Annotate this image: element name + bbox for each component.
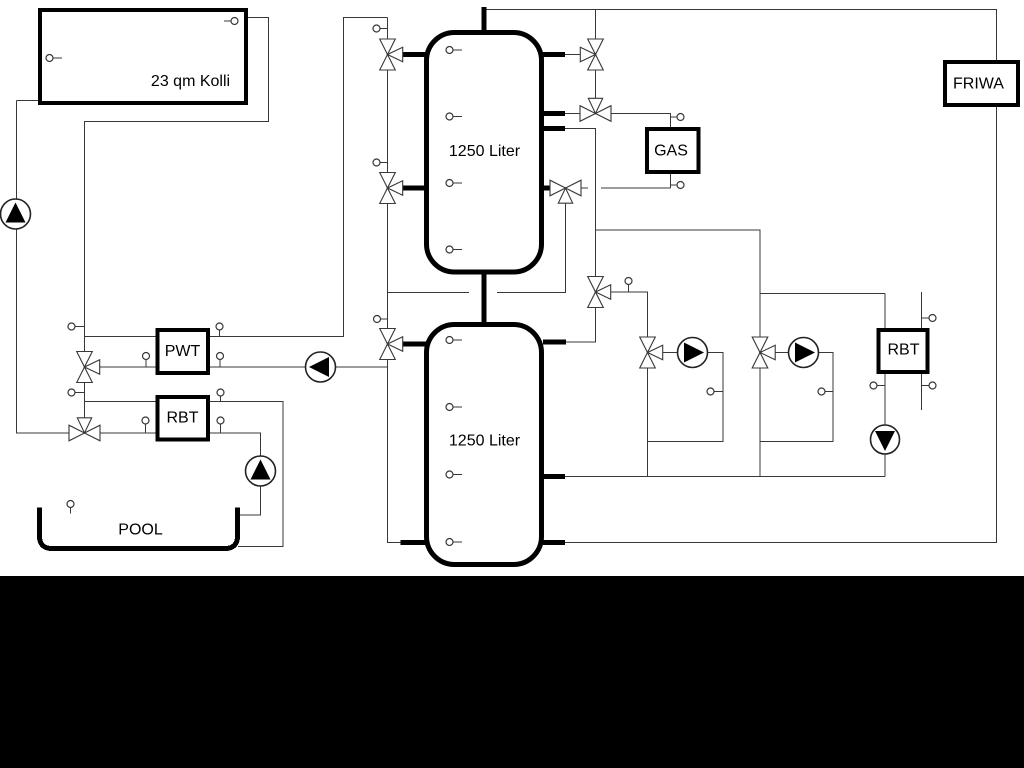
svg-text:RBT: RBT [167, 410, 199, 427]
svg-text:1250 Liter: 1250 Liter [449, 143, 521, 160]
svg-text:RBT: RBT [888, 342, 920, 359]
svg-text:23 qm Kolli: 23 qm Kolli [151, 73, 230, 90]
svg-text:1250 Liter: 1250 Liter [449, 433, 521, 450]
svg-text:POOL: POOL [118, 522, 163, 539]
svg-text:PWT: PWT [165, 343, 201, 360]
svg-text:GAS: GAS [654, 143, 688, 160]
svg-text:FRIWA: FRIWA [953, 76, 1004, 93]
